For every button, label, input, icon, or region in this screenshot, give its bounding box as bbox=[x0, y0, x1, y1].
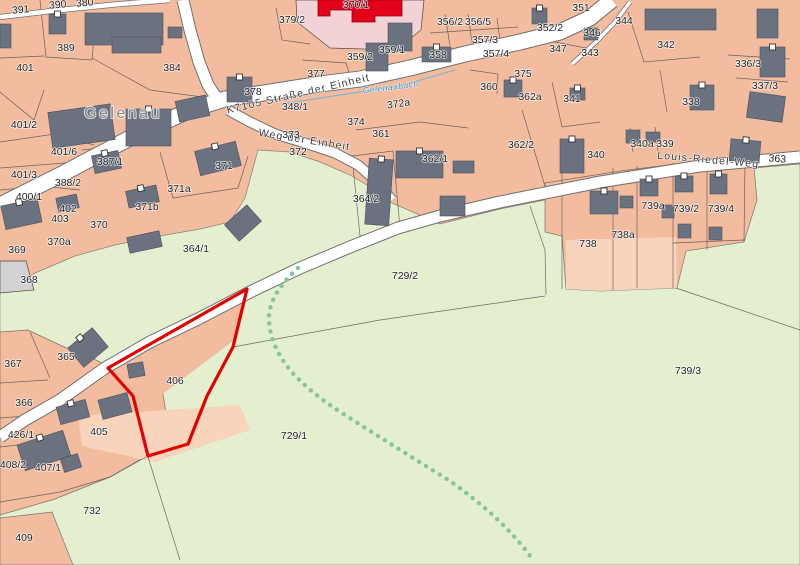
building bbox=[620, 196, 633, 208]
parcel-label-371: 371 bbox=[215, 160, 233, 172]
parcel-label-374: 374 bbox=[347, 116, 365, 128]
parcel-label-338: 338 bbox=[682, 96, 700, 108]
parcel-label-729/1: 729/1 bbox=[281, 430, 307, 442]
parcel-label-336/3: 336/3 bbox=[735, 58, 761, 70]
parcel-label-371a: 371a bbox=[167, 183, 191, 195]
house-marker bbox=[537, 5, 543, 11]
parcel-label-379/2: 379/2 bbox=[279, 14, 305, 26]
parcel-label-368: 368 bbox=[20, 274, 38, 286]
parcel-label-401/2: 401/2 bbox=[11, 119, 37, 131]
building bbox=[678, 224, 691, 238]
building bbox=[453, 161, 474, 173]
parcel-label-347: 347 bbox=[549, 43, 567, 55]
parcel-label-409: 409 bbox=[15, 532, 33, 544]
parcel-label-390: 390 bbox=[48, 0, 67, 12]
house-marker bbox=[646, 176, 652, 182]
parcel-label-377: 377 bbox=[307, 68, 325, 80]
parcel-label-729/2: 729/2 bbox=[392, 270, 418, 282]
parcel-label-363: 363 bbox=[768, 152, 787, 165]
parcel-label-340: 340 bbox=[587, 149, 605, 161]
parcel-label-344: 344 bbox=[615, 15, 633, 27]
parcel-label-380: 380 bbox=[75, 0, 94, 10]
parcel-label-387/1: 387/1 bbox=[97, 156, 123, 168]
parcel-label-366: 366 bbox=[15, 397, 33, 409]
parcel-label-339: 339 bbox=[656, 138, 674, 150]
parcel-label-356/2: 356/2 bbox=[437, 16, 463, 28]
parcel-label-401/6: 401/6 bbox=[51, 146, 77, 158]
building bbox=[112, 37, 161, 53]
house-marker bbox=[601, 188, 607, 194]
house-marker bbox=[716, 171, 722, 177]
parcel-label-352/2: 352/2 bbox=[537, 22, 563, 34]
parcel-label-401: 401 bbox=[16, 62, 34, 74]
parcel-label-356/5: 356/5 bbox=[465, 16, 491, 28]
parcel-label-364/2: 364/2 bbox=[353, 193, 379, 205]
building bbox=[168, 27, 182, 38]
house-marker bbox=[681, 173, 687, 179]
parcel-label-341: 341 bbox=[563, 93, 581, 105]
house-marker bbox=[67, 400, 74, 407]
parcel-label-391: 391 bbox=[11, 3, 30, 16]
building bbox=[645, 9, 716, 30]
parcel-label-738: 738 bbox=[579, 238, 597, 250]
parcel-label-342: 342 bbox=[657, 39, 675, 51]
parcel-label-426/1: 426/1 bbox=[8, 429, 34, 441]
house-marker bbox=[575, 85, 581, 91]
parcel-label-407/1: 407/1 bbox=[35, 462, 61, 474]
parcel-label-370: 370 bbox=[90, 219, 108, 231]
house-marker bbox=[699, 82, 705, 88]
parcel-label-739/4: 739/4 bbox=[708, 203, 734, 215]
house-marker bbox=[378, 156, 384, 162]
parcel-label-360: 360 bbox=[480, 81, 498, 93]
parcel-label-375: 375 bbox=[514, 68, 532, 80]
building bbox=[0, 24, 11, 48]
building bbox=[365, 158, 394, 226]
parcel-label-369: 369 bbox=[8, 244, 26, 256]
parcel-label-365: 365 bbox=[57, 351, 75, 363]
parcel-label-340a: 340a bbox=[630, 138, 654, 150]
parcel-label-367: 367 bbox=[4, 358, 22, 370]
parcel-label-362/1: 362/1 bbox=[422, 153, 448, 165]
building bbox=[760, 47, 785, 77]
house-marker bbox=[55, 11, 61, 17]
parcel-label-400/1: 400/1 bbox=[16, 191, 42, 203]
house-marker bbox=[770, 44, 776, 50]
parcel-label-362/2: 362/2 bbox=[508, 139, 534, 151]
house-marker bbox=[569, 136, 575, 142]
house-marker bbox=[211, 143, 218, 150]
parcel-label-389: 389 bbox=[57, 42, 75, 54]
parcel-label-362a: 362a bbox=[518, 91, 542, 103]
parcel-label-337/3: 337/3 bbox=[752, 80, 778, 92]
parcel-label-405: 405 bbox=[90, 426, 108, 438]
parcel-label-351: 351 bbox=[572, 2, 590, 14]
building bbox=[757, 9, 778, 38]
parcel-label-371b: 371b bbox=[135, 201, 159, 213]
parcel-label-378: 378 bbox=[244, 86, 262, 98]
parcel-label-403: 403 bbox=[51, 213, 69, 225]
parcel-label-364/1: 364/1 bbox=[183, 243, 209, 255]
parcel-label-346: 346 bbox=[583, 27, 601, 39]
parcel-label-738a: 738a bbox=[611, 229, 635, 241]
parcel-label-370a: 370a bbox=[47, 236, 71, 248]
parcel-label-408/2: 408/2 bbox=[0, 459, 26, 471]
parcel-label-739/3: 739/3 bbox=[675, 365, 701, 377]
building bbox=[127, 362, 145, 379]
parcel-label-359/2: 359/2 bbox=[347, 51, 373, 63]
building bbox=[560, 139, 584, 173]
parcel-label-388/2: 388/2 bbox=[55, 177, 81, 189]
parcel-label-370/1: 370/1 bbox=[343, 0, 369, 11]
house-marker bbox=[137, 185, 144, 192]
parcel-label-357/3: 357/3 bbox=[472, 34, 498, 46]
parcel-label-401/3: 401/3 bbox=[11, 169, 37, 181]
parcel-label-359/1: 359/1 bbox=[379, 44, 405, 56]
parcel-label-361: 361 bbox=[372, 128, 390, 140]
parcel-label-348/1: 348/1 bbox=[282, 101, 308, 113]
parcel-label-343: 343 bbox=[581, 47, 599, 59]
parcel-label-384: 384 bbox=[163, 62, 181, 74]
parcel-label-406: 406 bbox=[166, 375, 184, 387]
building bbox=[746, 92, 785, 123]
map-viewport[interactable]: GelenauK7105 Straße der EinheitWeg der E… bbox=[0, 0, 800, 565]
house-marker bbox=[237, 74, 243, 80]
parcel-label-357/4: 357/4 bbox=[483, 48, 509, 60]
parcel-label-373: 373 bbox=[282, 129, 300, 141]
parcel-label-739/2: 739/2 bbox=[673, 203, 699, 215]
parcel-label-372: 372 bbox=[289, 146, 307, 158]
place-label-Gelenau: Gelenau bbox=[84, 105, 162, 122]
parcel-label-358: 358 bbox=[429, 49, 447, 61]
parcel-label-739a: 739a bbox=[641, 200, 665, 212]
house-marker bbox=[743, 137, 750, 144]
building bbox=[709, 227, 722, 240]
building bbox=[440, 196, 465, 216]
parcel-label-732: 732 bbox=[83, 505, 101, 517]
house-marker bbox=[36, 434, 44, 442]
map-canvas[interactable]: GelenauK7105 Straße der EinheitWeg der E… bbox=[0, 0, 800, 565]
